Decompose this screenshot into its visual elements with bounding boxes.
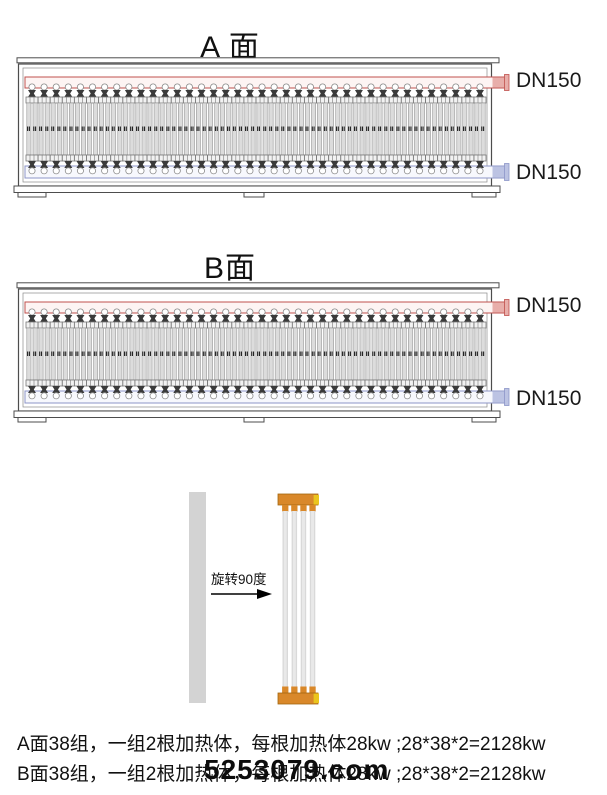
rotate-arrow-icon (206, 586, 276, 602)
heater-front-view (276, 492, 322, 706)
watermark: 5253079.com (204, 754, 389, 786)
heater-side-view-bar (189, 492, 206, 703)
rotate-90-label: 旋转90度 (211, 568, 267, 588)
panel-b-title: B面 (0, 243, 460, 287)
panel-b-bottom-pipe-label: DN150 (516, 387, 581, 411)
note-line-a: A面38组，一组2根加热体，每根加热体28kw ;28*38*2=2128kw (17, 729, 546, 756)
panel-b-drawing (0, 282, 515, 423)
panel-b-top-pipe-label: DN150 (516, 294, 581, 318)
panel-a-top-pipe-label: DN150 (516, 69, 581, 93)
panel-a-bottom-pipe-label: DN150 (516, 161, 581, 185)
panel-a-drawing (0, 57, 515, 198)
drawing-canvas: A 面 DN150 DN150 B面 DN150 DN150 旋转90度 A面3… (0, 0, 607, 795)
